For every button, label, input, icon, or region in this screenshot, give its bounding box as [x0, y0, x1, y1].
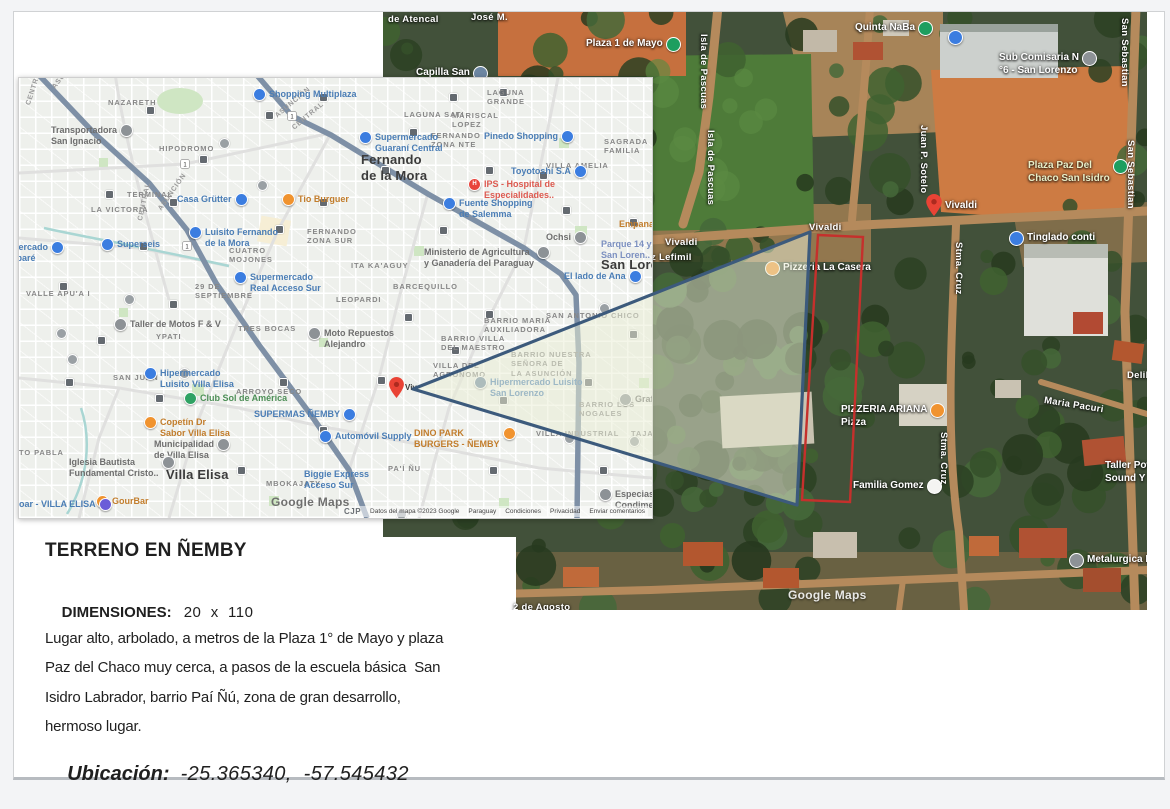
- description-line: hermoso lugar.: [45, 712, 443, 741]
- location-label: Ubicación: [67, 763, 163, 785]
- listing-description: Lugar alto, arbolado, a metros de la Pla…: [45, 624, 443, 741]
- description-line: Isidro Labrador, barrio Paí Ñú, zona de …: [45, 683, 443, 712]
- description-line: Paz del Chaco muy cerca, a pasos de la e…: [45, 653, 443, 682]
- map-attribution: CJP Datos del mapa ©2023 Google Paraguay…: [341, 506, 648, 517]
- listing-title: TERRENO EN ÑEMBY: [45, 540, 247, 562]
- listing-text-block: TERRENO EN ÑEMBY DIMENSIONES:20 x 110 Lu…: [45, 540, 247, 562]
- location-line: Ubicación: -25.365340, -57.545432: [45, 740, 409, 809]
- attribution-logo: CJP: [344, 507, 361, 516]
- street-map-image: 1 1 1 NAZARETHHIPODROMOTERMINALLA VICTOR…: [18, 77, 653, 519]
- dimensions-value: 20 x 110: [184, 604, 254, 621]
- attribution-link: Paraguay: [468, 508, 496, 515]
- location-coordinates: -25.365340, -57.545432: [181, 763, 409, 785]
- dimensions-label: DIMENSIONES:: [62, 604, 172, 621]
- location-separator: :: [163, 763, 181, 785]
- attribution-text: Datos del mapa ©2023 Google: [370, 508, 459, 515]
- attribution-link: Privacidad: [550, 508, 580, 515]
- attribution-link: Condiciones: [505, 508, 541, 515]
- description-line: Lugar alto, arbolado, a metros de la Pla…: [45, 624, 443, 653]
- attribution-link: Enviar comentarios: [589, 508, 645, 515]
- street-map-roads: 1 1 1: [19, 78, 652, 518]
